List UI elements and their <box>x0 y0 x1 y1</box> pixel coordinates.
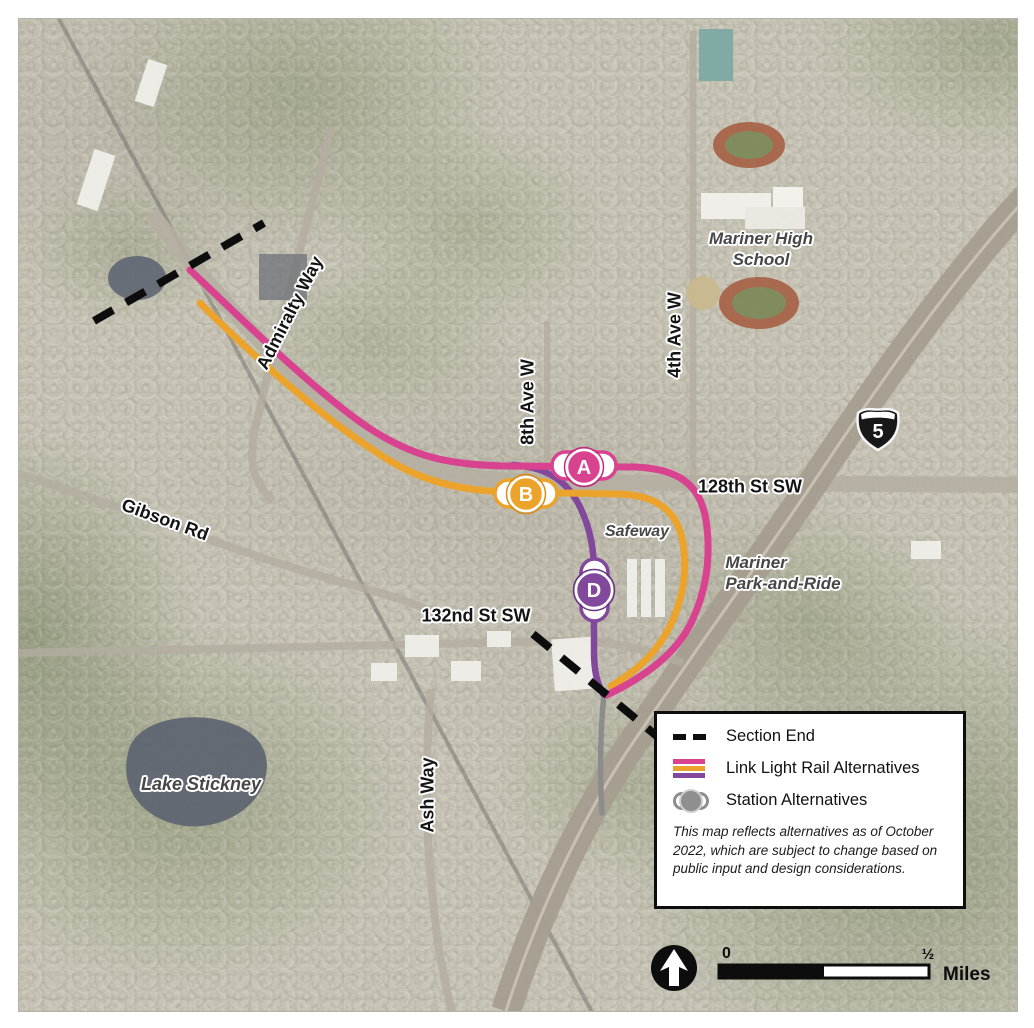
north-arrow <box>651 945 697 991</box>
station-a-label: A <box>577 457 591 479</box>
legend-row-stations: Station Alternatives <box>673 791 949 810</box>
school-campus <box>686 29 805 329</box>
scale-half-label: ½ <box>922 946 935 963</box>
ash-way-road <box>427 689 456 1012</box>
station-d-label: D <box>587 580 601 602</box>
legend-box: Section End Link Light Rail Alternatives <box>654 711 966 909</box>
legend-row-light-rail: Link Light Rail Alternatives <box>673 759 949 778</box>
scale-zero-label: 0 <box>722 945 731 962</box>
commercial-buildings <box>77 59 941 691</box>
admiralty-way-road <box>252 129 331 501</box>
section-end-dash-icon <box>673 734 717 740</box>
station-b-marker: B <box>495 475 557 514</box>
station-d-marker: D <box>574 559 615 621</box>
station-symbol-icon <box>673 792 717 810</box>
shield-number: 5 <box>872 421 883 443</box>
legend-stations-label: Station Alternatives <box>726 791 867 810</box>
scale-bar: 0 ½ Miles <box>719 945 991 985</box>
legend-section-end-label: Section End <box>726 727 815 746</box>
legend-row-section-end: Section End <box>673 727 949 746</box>
route-gray-south <box>601 694 604 813</box>
map-area: A B D 5 <box>18 18 1018 1012</box>
lake-stickney-water <box>126 717 267 826</box>
legend-light-rail-label: Link Light Rail Alternatives <box>726 759 920 778</box>
legend-note-line1: This map reflects alternatives as of Oct… <box>673 823 949 842</box>
legend-note-line3: public input and design considerations. <box>673 860 949 879</box>
legend-note-line2: 2022, which are subject to change based … <box>673 842 949 861</box>
transit-map-page: A B D 5 <box>0 0 1034 1028</box>
gibson-road <box>19 474 453 623</box>
station-b-label: B <box>519 484 533 506</box>
light-rail-lines-icon <box>673 759 717 778</box>
scale-unit-label: Miles <box>943 964 991 985</box>
dark-roof <box>259 254 307 300</box>
interstate-5-shield: 5 <box>857 409 898 450</box>
legend-note: This map reflects alternatives as of Oct… <box>673 823 949 879</box>
